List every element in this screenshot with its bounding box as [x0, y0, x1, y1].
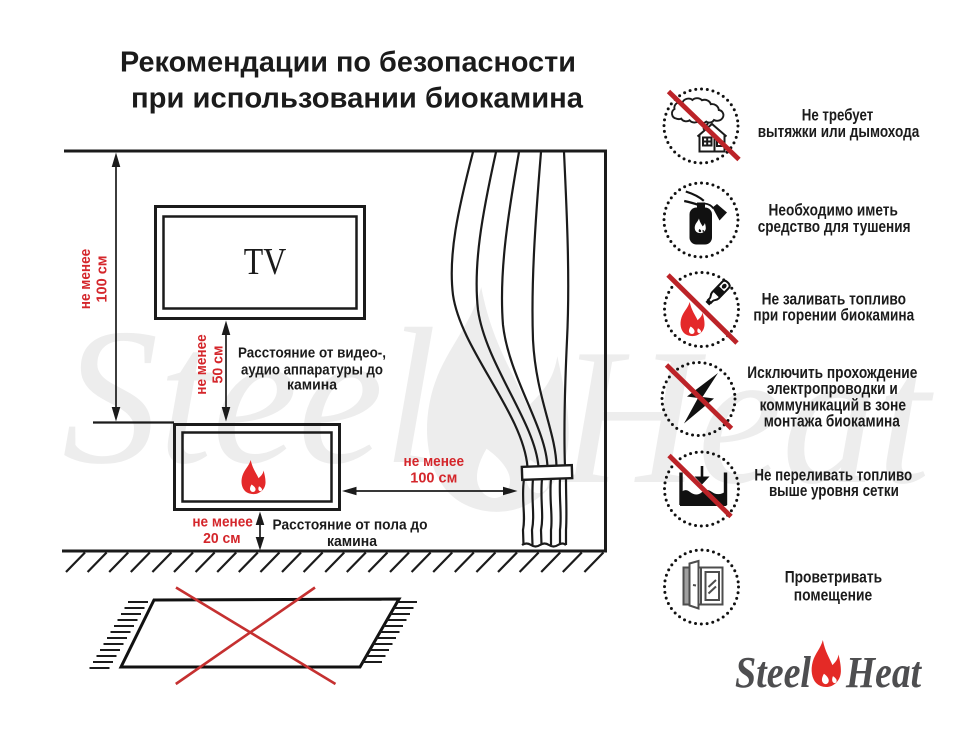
svg-text:Steel: Steel — [735, 648, 812, 697]
svg-text:Необходимо иметь: Необходимо иметь — [769, 202, 898, 220]
svg-text:Heat: Heat — [845, 648, 922, 697]
svg-text:камина: камина — [287, 378, 338, 394]
svg-text:вытяжки или дымохода: вытяжки или дымохода — [758, 123, 920, 141]
svg-text:камина: камина — [327, 534, 378, 550]
svg-text:не менее: не менее — [193, 334, 210, 395]
svg-text:100 см: 100 см — [94, 256, 111, 303]
svg-text:выше уровня сетки: выше уровня сетки — [769, 482, 899, 500]
svg-text:Не требует: Не требует — [802, 107, 874, 125]
svg-text:электропроводки и: электропроводки и — [767, 380, 898, 398]
svg-text:при горении биокамина: при горении биокамина — [753, 307, 914, 325]
svg-text:Расстояние от видео-,: Расстояние от видео-, — [238, 345, 386, 361]
svg-text:20 см: 20 см — [203, 530, 241, 547]
svg-text:не менее: не менее — [77, 249, 94, 310]
svg-text:Проветривать: Проветривать — [785, 568, 882, 586]
svg-text:помещение: помещение — [794, 586, 872, 604]
svg-text:не менее: не менее — [192, 514, 253, 531]
svg-text:средство для тушения: средство для тушения — [758, 218, 911, 236]
svg-text:аудио аппаратуры до: аудио аппаратуры до — [241, 362, 383, 378]
svg-text:100 см: 100 см — [410, 470, 457, 487]
svg-text:монтажа биокамина: монтажа биокамина — [764, 412, 901, 430]
svg-text:не менее: не менее — [404, 453, 465, 470]
svg-text:при использовании биокамина: при использовании биокамина — [131, 83, 584, 115]
svg-text:Рекомендации по безопасности: Рекомендации по безопасности — [120, 47, 576, 79]
svg-text:50 см: 50 см — [210, 346, 227, 384]
svg-text:TV: TV — [244, 241, 287, 283]
svg-text:Расстояние от пола до: Расстояние от пола до — [273, 518, 428, 534]
